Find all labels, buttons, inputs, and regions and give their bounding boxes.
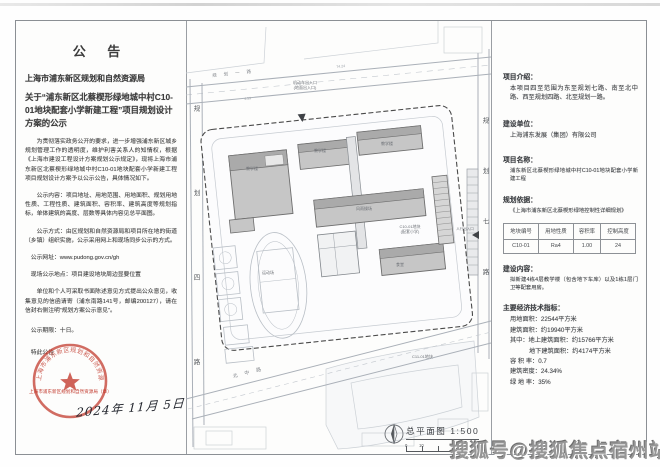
map-label-sports: 运动场 bbox=[262, 271, 274, 276]
indicator-line: 绿 地 率：35% bbox=[503, 378, 638, 388]
table-row: C10-01 Ra4 1.00 24 bbox=[504, 239, 636, 253]
project-info-column: 项目介绍： 本项目四至范围为东至规划七路、南至北中路、西至规划四路、北至规划一路… bbox=[493, 21, 648, 453]
content-heading: 建设内容： bbox=[503, 263, 638, 273]
map-label-building: 教学楼 bbox=[381, 142, 393, 147]
site-plan-drawing bbox=[186, 21, 491, 453]
agency-name: 上海市浦东新区规划和自然资源局 bbox=[25, 73, 177, 84]
plot-indicator-table: 地块编号 用地性质 容积率 控制高度 C10-01 Ra4 1.00 24 bbox=[503, 223, 636, 254]
announcement-column: 公 告 上海市浦东新区规划和自然资源局 关于“浦东新区北蔡楔形绿地城中村C10-… bbox=[16, 21, 186, 453]
map-label-ped-entrance: 人行出入口 bbox=[450, 227, 480, 232]
indicators-heading: 主要经济技术指标： bbox=[503, 302, 638, 312]
road-name-west: 规划四路 bbox=[190, 105, 200, 443]
map-label-building: 教学楼 bbox=[314, 149, 326, 154]
announcement-title: 公 告 bbox=[25, 41, 177, 60]
indicator-line: 容 积 率：0.7 bbox=[503, 357, 638, 367]
table-cell: 24 bbox=[601, 239, 636, 253]
stamp-caption: 上海市浦东新区规划和自然资源局（章） bbox=[29, 389, 141, 395]
feedback-line: 单位和个人可采取书面陈述意见方式提出公众意见，收集意见的信函请寄（浦东南路141… bbox=[25, 288, 177, 316]
scale-zero: 0 bbox=[405, 443, 407, 448]
dimension-label: 74.24 bbox=[336, 64, 345, 70]
column-divider-right bbox=[491, 21, 492, 454]
sohu-watermark: 搜狐号@搜狐焦点宿州站 bbox=[450, 436, 660, 463]
map-label-building: 教学楼 bbox=[246, 167, 258, 172]
basis-body: 《上海市浦东新区北蔡楔形绿地控制性详细规划》 bbox=[503, 207, 638, 216]
indicator-line: 建筑面积：约19940平方米 bbox=[503, 326, 638, 336]
north-arrow-icon bbox=[384, 421, 404, 447]
map-label-entrance: 机动车出入口 (地面出入口) bbox=[282, 81, 328, 91]
project-name-heading: 项目名称： bbox=[503, 154, 638, 164]
builder-heading: 建设单位： bbox=[503, 118, 638, 128]
map-label-building: 食堂 bbox=[396, 263, 404, 268]
map-label-parcel: C10-01地块 (配套小学) bbox=[382, 225, 438, 235]
road-name-east: 规划七路 bbox=[479, 117, 489, 319]
table-cell: C10-01 bbox=[504, 239, 539, 253]
indicator-line: 用地面积：22544平方米 bbox=[503, 315, 638, 325]
stamp-star-icon bbox=[60, 372, 80, 391]
map-label-neighbor-parcel: C11-01地块 bbox=[412, 355, 433, 360]
onsite-notice-line: 现场公示地点：项目建设地块周边显要位置 bbox=[25, 271, 177, 280]
indicator-line: 其中：地上建筑面积：约15766平方米 bbox=[503, 336, 638, 346]
project-name-body: 浦东新区北蔡楔形绿地城中村C10-01地块配套小学新建工程 bbox=[503, 167, 638, 183]
document-sheet: 公 告 上海市浦东新区规划和自然资源局 关于“浦东新区北蔡楔形绿地城中村C10-… bbox=[15, 20, 647, 455]
intro-heading: 项目介绍： bbox=[503, 71, 638, 81]
dimension-label: 4.59 bbox=[244, 96, 251, 102]
builder-body: 上海浦东发展（集团）有限公司 bbox=[503, 131, 638, 140]
publicity-website-line: 公示网址：www.pudong.gov.cn/gh bbox=[25, 254, 177, 263]
map-label-building: 风雨操场 bbox=[356, 207, 372, 212]
announcement-paragraph: 公示方式：由区规划和自然资源局和项目所在地的街道（乡镇）组织实施，公示采用网上和… bbox=[25, 228, 177, 246]
table-header: 用地性质 bbox=[538, 223, 573, 239]
indicator-line: 地下建筑面积：约4174平方米 bbox=[503, 347, 638, 357]
announcement-paragraph: 为贯彻落实政务公开的要求，进一步增强浦东新区城乡规划管理工作的透明度，维护利害关… bbox=[25, 138, 177, 184]
duration-line: 公示期限：十日。 bbox=[25, 327, 177, 336]
parking-strip bbox=[467, 169, 479, 275]
scale-bar: 0 10 bbox=[406, 445, 454, 452]
table-header: 控制高度 bbox=[601, 223, 636, 239]
content-body: 拟新建4栋4层教学楼（包含地下车库）以及1栋1层门卫等配套用房。 bbox=[503, 276, 638, 293]
announcement-paragraph: 公示内容：项目地址、用地范围、用地面积、规划用地性质、工程性质、建筑面积、容积率… bbox=[25, 192, 177, 220]
scan-edge-artifact bbox=[0, 3, 660, 6]
table-header: 地块编号 bbox=[504, 223, 539, 239]
site-plan-column: 机动车出入口 (地面出入口) 教学楼 教学楼 教学楼 风雨操场 食堂 运动场 C… bbox=[186, 21, 491, 453]
scanned-announcement-page: 公 告 上海市浦东新区规划和自然资源局 关于“浦东新区北蔡楔形绿地城中村C10-… bbox=[0, 0, 660, 467]
intro-body: 本项目四至范围为东至规划七路、南至北中路、西至规划四路、北至规划一路。 bbox=[503, 84, 638, 103]
table-cell: Ra4 bbox=[538, 239, 573, 253]
indicator-line: 建筑密度：24.34% bbox=[503, 367, 638, 377]
announcement-subject: 关于“浦东新区北蔡楔形绿地城中村C10-01地块配套小学新建工程”项目规划设计方… bbox=[25, 91, 177, 130]
scale-ten: 10 bbox=[419, 443, 424, 448]
table-cell: 1.00 bbox=[573, 239, 600, 253]
table-header: 容积率 bbox=[573, 223, 600, 239]
basis-heading: 规划依据： bbox=[503, 194, 638, 204]
